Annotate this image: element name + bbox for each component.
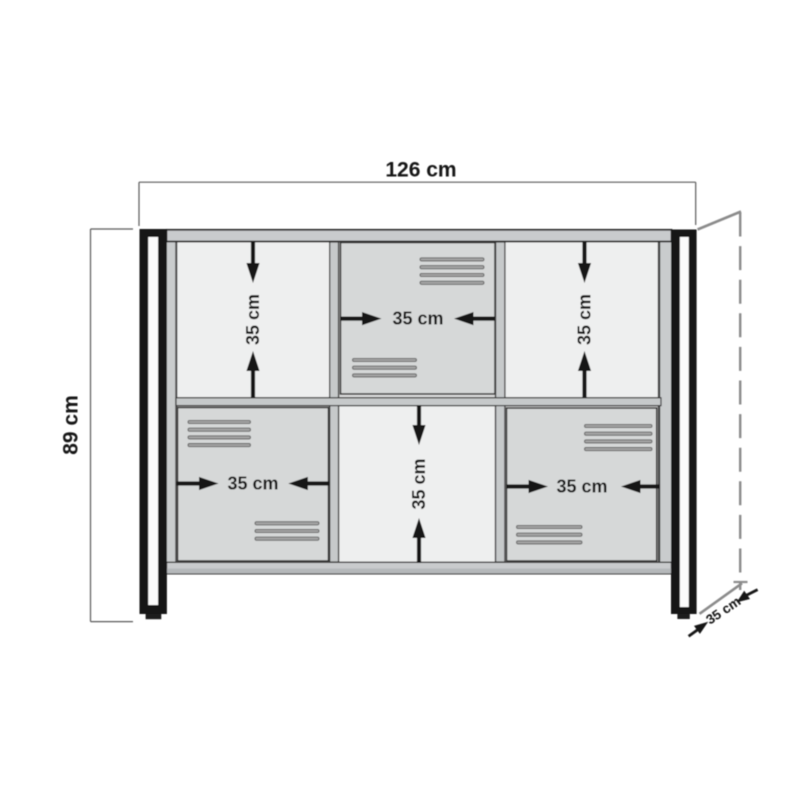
svg-text:126 cm: 126 cm [385, 159, 456, 182]
svg-text:89 cm: 89 cm [60, 395, 83, 455]
svg-text:35 cm: 35 cm [392, 309, 443, 329]
svg-text:35 cm: 35 cm [575, 294, 595, 345]
svg-text:35 cm: 35 cm [243, 294, 263, 345]
svg-text:35 cm: 35 cm [556, 477, 607, 497]
svg-text:35 cm: 35 cm [227, 474, 278, 494]
svg-text:35 cm: 35 cm [409, 458, 429, 509]
